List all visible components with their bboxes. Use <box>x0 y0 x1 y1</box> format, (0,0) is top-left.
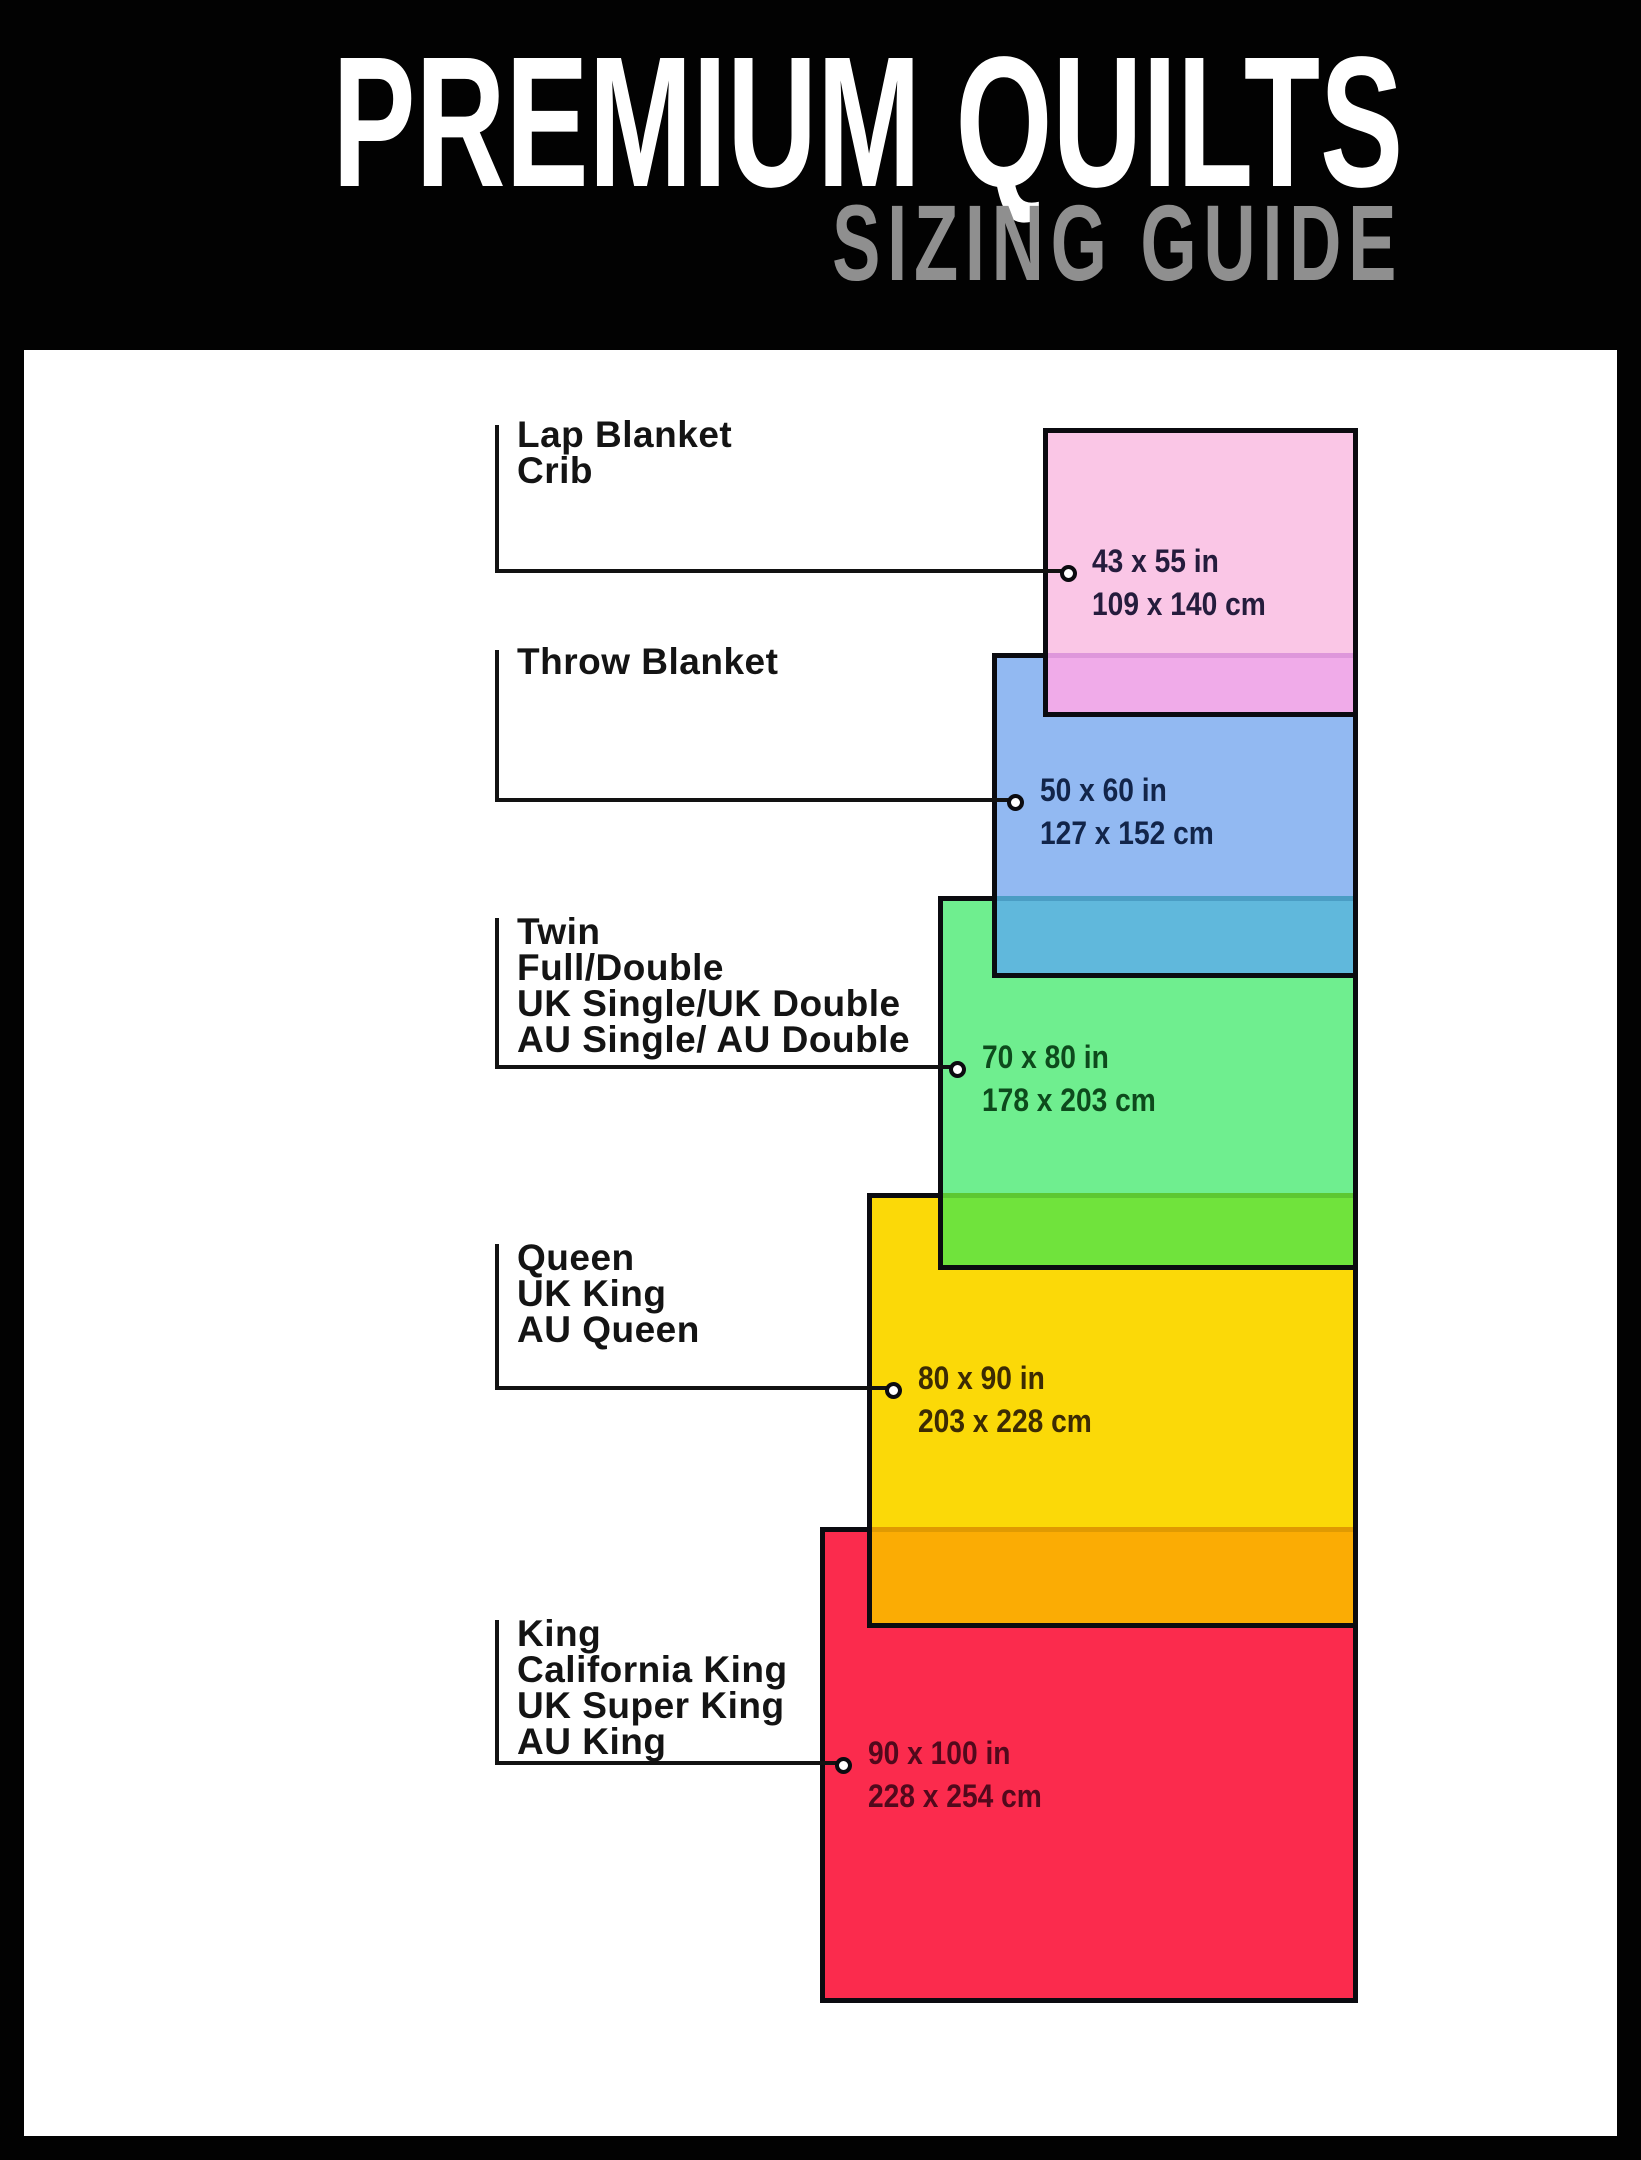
overlap-strip-throw-blanket <box>997 896 1353 973</box>
dimension-cm: 228 x 254 cm <box>868 1775 1042 1818</box>
leader-line-vertical-lap-blanket <box>495 425 499 573</box>
frame-border-right <box>1617 350 1641 2160</box>
label-line: AU Queen <box>517 1312 700 1348</box>
underlying-border-line <box>997 896 1353 901</box>
underlying-border-line <box>1048 653 1353 658</box>
label-line: California King <box>517 1652 788 1688</box>
underlying-border-line <box>943 1193 1353 1198</box>
leader-line-horizontal-twin <box>495 1065 957 1069</box>
label-line: UK King <box>517 1276 700 1312</box>
label-line: Queen <box>517 1240 700 1276</box>
size-dimensions-queen: 80 x 90 in203 x 228 cm <box>918 1357 1092 1443</box>
leader-dot-lap-blanket <box>1060 565 1077 582</box>
dimension-cm: 178 x 203 cm <box>982 1079 1156 1122</box>
label-line: Throw Blanket <box>517 644 778 680</box>
dimension-inches: 70 x 80 in <box>982 1036 1156 1079</box>
leader-dot-throw-blanket <box>1007 794 1024 811</box>
leader-dot-twin <box>949 1061 966 1078</box>
dimension-cm: 127 x 152 cm <box>1040 812 1214 855</box>
label-line: Crib <box>517 453 732 489</box>
dimension-cm: 203 x 228 cm <box>918 1400 1092 1443</box>
dimension-inches: 50 x 60 in <box>1040 769 1214 812</box>
leader-line-horizontal-queen <box>495 1386 893 1390</box>
dimension-inches: 43 x 55 in <box>1092 540 1266 583</box>
size-name-labels-queen: QueenUK KingAU Queen <box>517 1240 700 1348</box>
leader-line-vertical-queen <box>495 1244 499 1390</box>
leader-line-horizontal-lap-blanket <box>495 569 1068 573</box>
label-line: Lap Blanket <box>517 417 732 453</box>
dimension-inches: 90 x 100 in <box>868 1732 1042 1775</box>
label-line: AU Single/ AU Double <box>517 1022 910 1058</box>
size-dimensions-twin: 70 x 80 in178 x 203 cm <box>982 1036 1156 1122</box>
overlap-strip-lap-blanket <box>1048 653 1353 712</box>
size-name-labels-throw-blanket: Throw Blanket <box>517 644 778 680</box>
underlying-border-line <box>872 1527 1353 1532</box>
overlap-strip-twin <box>943 1193 1353 1265</box>
size-name-labels-lap-blanket: Lap BlanketCrib <box>517 417 732 489</box>
leader-line-vertical-twin <box>495 918 499 1069</box>
leader-dot-queen <box>885 1382 902 1399</box>
page-subtitle: SIZING GUIDE <box>832 189 1403 297</box>
label-line: AU King <box>517 1724 788 1760</box>
label-line: King <box>517 1616 788 1652</box>
size-name-labels-twin: TwinFull/DoubleUK Single/UK DoubleAU Sin… <box>517 914 910 1058</box>
label-line: Full/Double <box>517 950 910 986</box>
overlap-strip-queen <box>872 1527 1353 1623</box>
frame-border-left <box>0 350 24 2160</box>
leader-line-horizontal-throw-blanket <box>495 798 1015 802</box>
size-name-labels-king: KingCalifornia KingUK Super KingAU King <box>517 1616 788 1760</box>
leader-dot-king <box>835 1757 852 1774</box>
leader-line-vertical-king <box>495 1620 499 1765</box>
size-dimensions-king: 90 x 100 in228 x 254 cm <box>868 1732 1042 1818</box>
size-dimensions-lap-blanket: 43 x 55 in109 x 140 cm <box>1092 540 1266 626</box>
dimension-inches: 80 x 90 in <box>918 1357 1092 1400</box>
header-banner: PREMIUM QUILTS SIZING GUIDE <box>0 0 1641 350</box>
label-line: Twin <box>517 914 910 950</box>
label-line: UK Super King <box>517 1688 788 1724</box>
label-line: UK Single/UK Double <box>517 986 910 1022</box>
leader-line-vertical-throw-blanket <box>495 650 499 802</box>
frame-border-bottom <box>0 2136 1641 2160</box>
dimension-cm: 109 x 140 cm <box>1092 583 1266 626</box>
size-dimensions-throw-blanket: 50 x 60 in127 x 152 cm <box>1040 769 1214 855</box>
